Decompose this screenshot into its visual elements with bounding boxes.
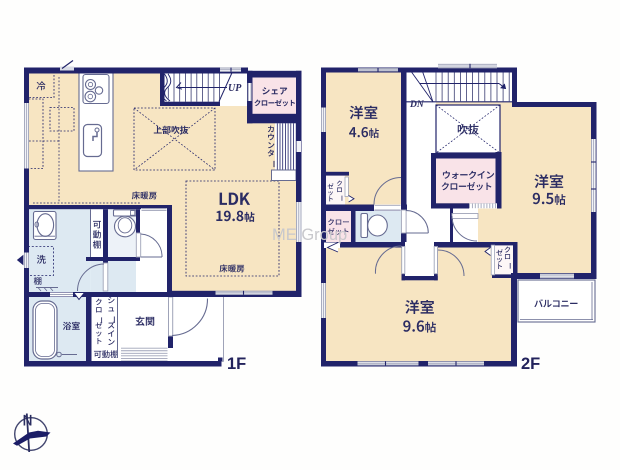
svg-text:UP: UP	[228, 83, 242, 94]
svg-text:ME Group: ME Group	[272, 226, 347, 244]
svg-text:1F: 1F	[227, 355, 246, 373]
svg-text:2F: 2F	[521, 355, 540, 373]
svg-text:DN: DN	[409, 100, 425, 110]
